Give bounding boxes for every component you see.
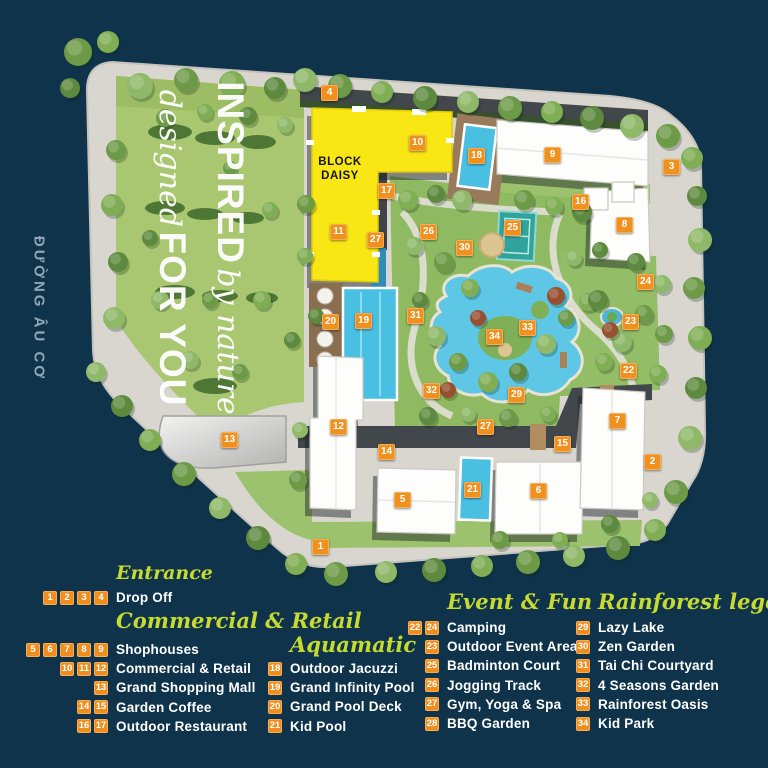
badminton-court xyxy=(497,211,536,261)
map-marker-12[interactable]: 12 xyxy=(330,419,347,435)
map-marker-17[interactable]: 17 xyxy=(378,183,395,199)
legend-label: Grand Pool Deck xyxy=(290,699,402,714)
legend-number-5: 5 xyxy=(26,643,40,657)
legend-number-25: 25 xyxy=(425,659,439,673)
legend-row: 56789Shophouses xyxy=(26,640,199,659)
legend-row: 23Outdoor Event Area xyxy=(408,637,578,656)
legend-header-3: Event & Fun xyxy=(447,589,592,614)
legend-row: 33Rainforest Oasis xyxy=(576,695,709,714)
legend-label: Zen Garden xyxy=(598,639,675,654)
map-marker-20[interactable]: 20 xyxy=(322,314,339,330)
map-marker-10[interactable]: 10 xyxy=(409,135,426,151)
map-marker-26[interactable]: 26 xyxy=(420,224,437,240)
legend-label: Grand Infinity Pool xyxy=(290,680,415,695)
legend-number-15: 15 xyxy=(94,700,108,714)
legend-label: Grand Shopping Mall xyxy=(116,680,256,695)
legend-row: 21Kid Pool xyxy=(268,717,346,736)
map-marker-3[interactable]: 3 xyxy=(663,159,680,175)
map-marker-18[interactable]: 18 xyxy=(468,148,485,164)
legend-row: 28BBQ Garden xyxy=(408,714,530,733)
map-marker-33[interactable]: 33 xyxy=(519,320,536,336)
map-marker-24[interactable]: 24 xyxy=(637,274,654,290)
map-marker-13[interactable]: 13 xyxy=(221,432,238,448)
legend-number-28: 28 xyxy=(425,717,439,731)
legend-row: 101112Commercial & Retail xyxy=(26,659,251,678)
legend-number-9: 9 xyxy=(94,643,108,657)
block-daisy-label: BLOCK DAISY xyxy=(314,156,366,183)
legend-row: 34Kid Park xyxy=(576,714,654,733)
legend-label: BBQ Garden xyxy=(447,716,530,731)
legend-row: 25Badminton Court xyxy=(408,656,560,675)
map-marker-27[interactable]: 27 xyxy=(477,419,494,435)
legend-header-0: Entrance xyxy=(116,562,213,584)
map-marker-29[interactable]: 29 xyxy=(508,387,525,403)
map-marker-9[interactable]: 9 xyxy=(544,147,561,163)
legend-number-8: 8 xyxy=(77,643,91,657)
legend-number-30: 30 xyxy=(576,640,590,654)
legend-label: Tai Chi Courtyard xyxy=(598,658,714,673)
map-marker-15[interactable]: 15 xyxy=(554,436,571,452)
legend-number-4: 4 xyxy=(94,591,108,605)
map-marker-7[interactable]: 7 xyxy=(609,413,626,429)
legend-label: Kid Park xyxy=(598,716,654,731)
legend-number-26: 26 xyxy=(425,678,439,692)
legend-row: 13Grand Shopping Mall xyxy=(26,678,256,697)
legend-number-12: 12 xyxy=(94,662,108,676)
legend-label: Outdoor Jacuzzi xyxy=(290,661,398,676)
map-marker-22[interactable]: 22 xyxy=(620,363,637,379)
legend-row: 1415Garden Coffee xyxy=(26,698,212,717)
legend-number-14: 14 xyxy=(77,700,91,714)
legend-row: 31Tai Chi Courtyard xyxy=(576,656,714,675)
legend-label: Gym, Yoga & Spa xyxy=(447,697,561,712)
legend-row: 19Grand Infinity Pool xyxy=(268,678,415,697)
legend-number-18: 18 xyxy=(268,662,282,676)
map-marker-19[interactable]: 19 xyxy=(355,313,372,329)
legend-number-16: 16 xyxy=(77,719,91,733)
legend-number-27: 27 xyxy=(425,697,439,711)
legend-row: 29Lazy Lake xyxy=(576,618,664,637)
map-marker-32[interactable]: 32 xyxy=(423,383,440,399)
legend-number-31: 31 xyxy=(576,659,590,673)
legend-row: 30Zen Garden xyxy=(576,637,675,656)
legend-label: 4 Seasons Garden xyxy=(598,678,719,693)
legend-number-22: 22 xyxy=(408,621,422,635)
slogan-by-nature: by nature xyxy=(210,268,245,414)
legend-number-32: 32 xyxy=(576,678,590,692)
map-marker-1[interactable]: 1 xyxy=(312,539,329,555)
map-marker-4[interactable]: 4 xyxy=(321,85,338,101)
slogan-designed: designed xyxy=(152,90,187,227)
legend-number-19: 19 xyxy=(268,681,282,695)
map-marker-5[interactable]: 5 xyxy=(394,492,411,508)
street-label: ĐƯỜNG ÂU CƠ xyxy=(31,228,48,390)
map-marker-31[interactable]: 31 xyxy=(407,308,424,324)
legend-label: Garden Coffee xyxy=(116,700,212,715)
map-marker-21[interactable]: 21 xyxy=(464,482,481,498)
legend-label: Badminton Court xyxy=(447,658,560,673)
legend-number-33: 33 xyxy=(576,697,590,711)
legend-number-1: 1 xyxy=(43,591,57,605)
legend-header-4: Rainforest legend xyxy=(598,589,768,614)
map-marker-8[interactable]: 8 xyxy=(616,217,633,233)
legend-number-21: 21 xyxy=(268,719,282,733)
legend-number-10: 10 xyxy=(60,662,74,676)
legend-number-2: 2 xyxy=(60,591,74,605)
legend-row: 26Jogging Track xyxy=(408,676,541,695)
legend-label: Kid Pool xyxy=(290,719,346,734)
legend-number-23: 23 xyxy=(425,640,439,654)
legend-row: 2224Camping xyxy=(408,618,506,637)
map-marker-30[interactable]: 30 xyxy=(456,240,473,256)
legend-row: 324 Seasons Garden xyxy=(576,676,719,695)
legend-label: Shophouses xyxy=(116,642,199,657)
map-marker-14[interactable]: 14 xyxy=(378,444,395,460)
legend-number-29: 29 xyxy=(576,621,590,635)
legend-label: Commercial & Retail xyxy=(116,661,251,676)
legend-label: Outdoor Restaurant xyxy=(116,719,247,734)
legend-number-7: 7 xyxy=(60,643,74,657)
legend-number-11: 11 xyxy=(77,662,91,676)
zen-garden xyxy=(480,233,504,257)
map-marker-27[interactable]: 27 xyxy=(367,232,384,248)
legend-label: Jogging Track xyxy=(447,678,541,693)
legend-row: 1617Outdoor Restaurant xyxy=(26,717,247,736)
legend-row: 20Grand Pool Deck xyxy=(268,697,402,716)
legend-label: Outdoor Event Area xyxy=(447,639,578,654)
map-marker-16[interactable]: 16 xyxy=(572,194,589,210)
slogan-inspired: INSPIRED xyxy=(210,81,251,264)
legend-number-6: 6 xyxy=(43,643,57,657)
map-marker-25[interactable]: 25 xyxy=(504,220,521,236)
map-marker-11[interactable]: 11 xyxy=(330,224,347,240)
legend-number-34: 34 xyxy=(576,717,590,731)
map-marker-2[interactable]: 2 xyxy=(644,454,661,470)
map-marker-6[interactable]: 6 xyxy=(530,483,547,499)
legend-row: 27Gym, Yoga & Spa xyxy=(408,695,561,714)
site-plan-canvas: 1234567891011121314151617181920212223242… xyxy=(0,0,768,768)
legend-header-1: Commercial & Retail xyxy=(116,608,362,633)
legend-label: Lazy Lake xyxy=(598,620,664,635)
legend-label: Drop Off xyxy=(116,590,172,605)
legend-row: 1234Drop Off xyxy=(42,588,172,607)
legend-row: 18Outdoor Jacuzzi xyxy=(268,659,398,678)
legend-number-13: 13 xyxy=(94,681,108,695)
legend-number-24: 24 xyxy=(425,621,439,635)
legend-label: Rainforest Oasis xyxy=(598,697,709,712)
map-marker-23[interactable]: 23 xyxy=(622,314,639,330)
slogan-for-you: FOR YOU xyxy=(152,231,193,406)
map-marker-34[interactable]: 34 xyxy=(486,329,503,345)
legend-number-3: 3 xyxy=(77,591,91,605)
legend-number-17: 17 xyxy=(94,719,108,733)
legend-header-2: Aquamatic xyxy=(290,632,416,657)
legend-label: Camping xyxy=(447,620,506,635)
slogan-text: INSPIRED by nature designed FOR YOU xyxy=(151,78,255,418)
legend-number-20: 20 xyxy=(268,700,282,714)
